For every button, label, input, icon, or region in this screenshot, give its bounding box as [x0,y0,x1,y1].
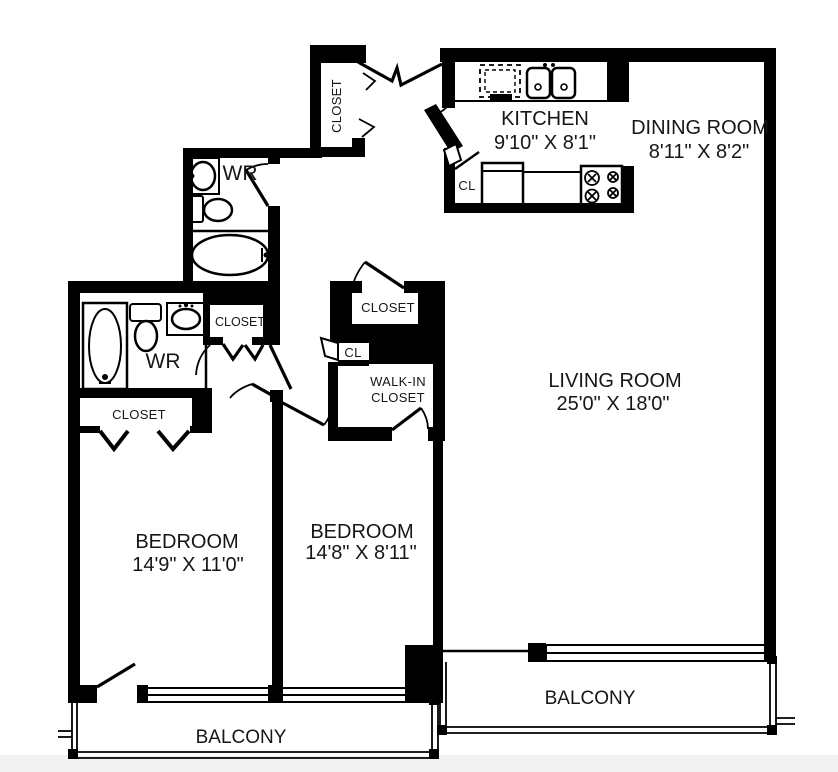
kitchen-cl-label: CL [458,178,475,193]
wall-segment [338,360,369,366]
floor-plan: CLOSET KITCHEN 9'10" X 8'1" DINING ROOM … [0,0,838,772]
living-room-label: LIVING ROOM [548,370,681,392]
bedroom2-dims: 14'8" X 8'11" [305,542,417,564]
balcony-left-label: BALCONY [196,727,287,748]
wall-segment [210,337,223,345]
bedroom1-dims: 14'9" X 11'0" [132,554,244,576]
wall-segment [68,685,97,703]
wall-segment [328,362,338,438]
wall-segment [268,685,283,703]
wall-segment [607,60,629,102]
wall-segment [405,645,443,703]
wall-segment [528,643,546,662]
wall-segment [352,324,418,343]
dining-room-label: DINING ROOM [631,117,769,139]
entry-closet-label: CLOSET [329,79,344,133]
wall-segment [330,293,352,343]
living-room-dims: 25'0" X 18'0" [556,393,669,415]
wall-segment [328,427,392,441]
walk-in-closet-label-line1: WALK-IN [370,374,426,389]
wall-segment [310,60,321,157]
wall-segment [137,685,148,703]
wall-segment [369,343,445,364]
bedroom2-label: BEDROOM [310,521,413,543]
wall-segment [428,427,445,441]
floor-plan-page: CLOSET KITCHEN 9'10" X 8'1" DINING ROOM … [0,0,838,772]
wall-segment [263,293,280,345]
wall-segment [352,138,365,152]
wall-segment [68,281,280,293]
bedroom1-closet-label: CLOSET [112,407,166,422]
hall-closet-label: CLOSET [215,315,265,329]
wall-segment [268,206,280,292]
kitchen-label: KITCHEN [501,108,589,130]
wall-segment [433,441,443,652]
washroom-lower-label: WR [146,350,181,373]
wall-segment [183,148,322,158]
wall-segment [268,148,280,164]
wall-segment [330,281,362,293]
balcony-right-label: BALCONY [545,688,636,709]
wall-segment [272,400,283,688]
wall-segment [190,426,212,433]
wall-segment [252,337,263,345]
wall-segment [68,293,80,703]
kitchen-dims: 9'10" X 8'1" [494,132,596,154]
wall-segment [404,281,445,293]
wall-segment [80,426,100,433]
wall-segment [764,48,776,662]
bedroom1-label: BEDROOM [135,531,238,553]
walk-in-closet-label-line2: CLOSET [371,390,425,405]
dining-room-dims: 8'11" X 8'2" [649,141,749,163]
wall-segment [418,293,445,343]
bedroom2-closet-label: CLOSET [361,300,415,315]
hall-cl-label: CL [344,345,361,360]
wall-segment [442,48,455,108]
washroom-upper-label: WR [223,162,258,185]
